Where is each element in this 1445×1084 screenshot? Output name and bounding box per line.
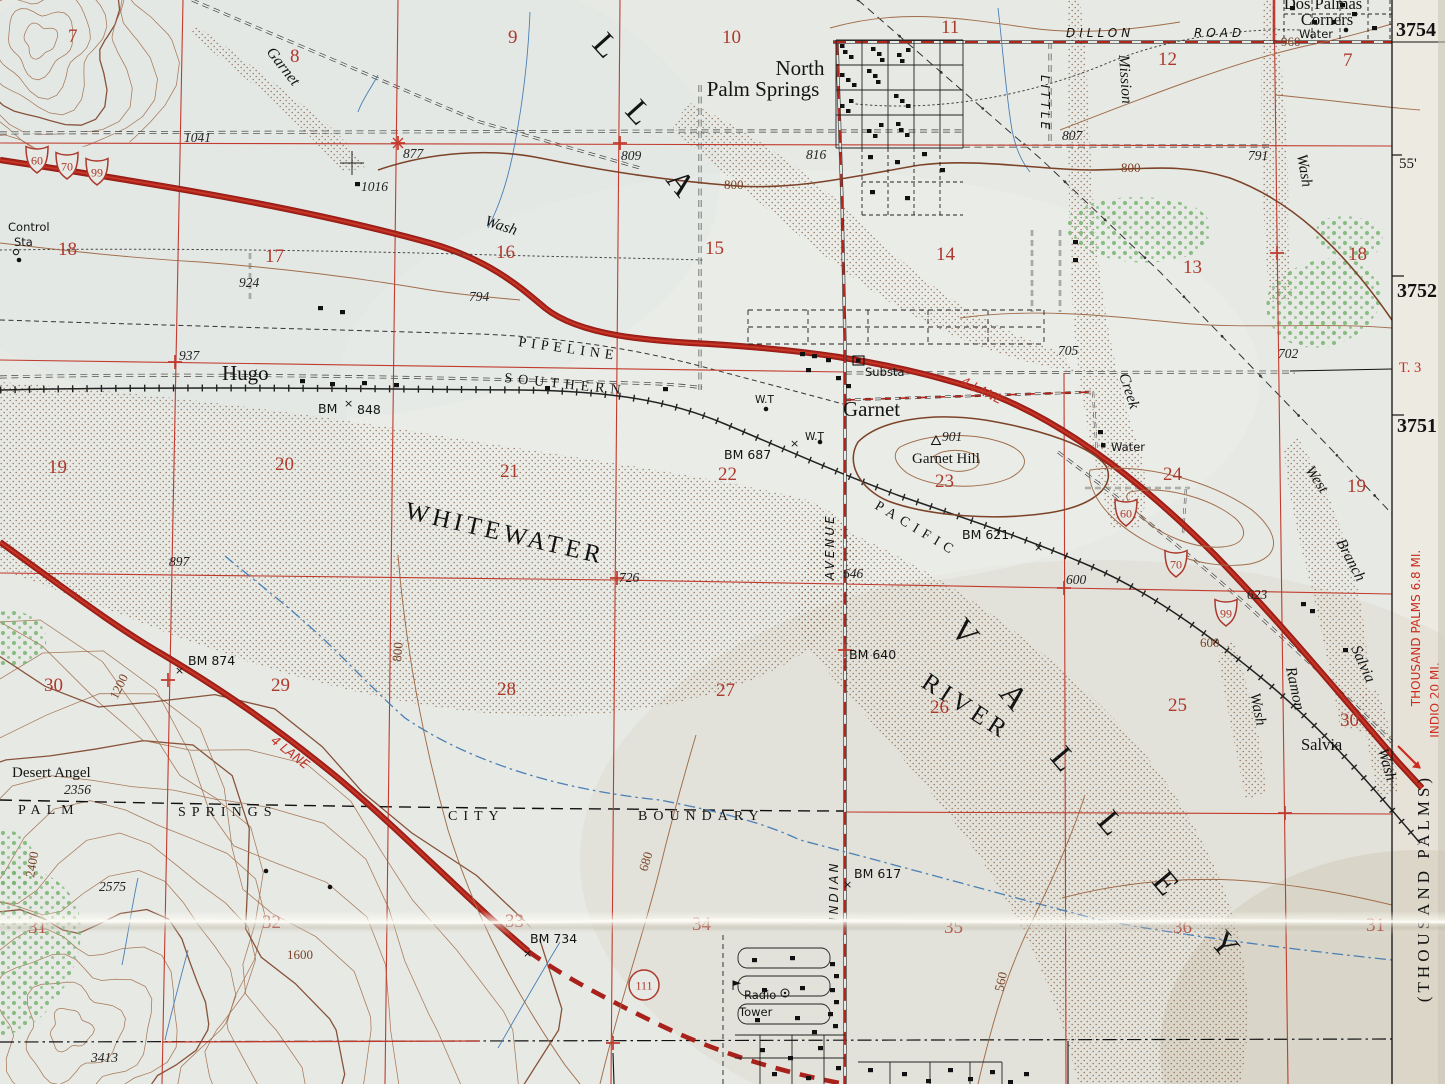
elev-label-1016: 1016 (361, 179, 388, 194)
building (840, 104, 845, 108)
building (812, 354, 817, 358)
town-label-garnet: Garnet (843, 397, 900, 421)
building (846, 384, 851, 388)
elev-label-726: 726 (619, 570, 640, 585)
sec-label-10: 10 (722, 27, 741, 48)
building (840, 73, 845, 77)
bm-label-bm-621: BM 621 (962, 527, 1009, 542)
building (877, 52, 882, 56)
sec-label-30: 30 (1340, 710, 1359, 731)
building (896, 122, 901, 126)
route-number: 70 (1170, 558, 1182, 572)
building (873, 134, 878, 138)
elev-label-897: 897 (169, 554, 191, 569)
building (940, 168, 945, 172)
building (849, 99, 854, 103)
rds-label-palm: PALM (18, 803, 80, 818)
building (880, 58, 885, 62)
building (906, 48, 911, 52)
route-number: 111 (635, 979, 652, 993)
bm-label-bm-640: BM 640 (849, 647, 896, 662)
sec-label-28: 28 (497, 679, 516, 700)
building (895, 160, 900, 164)
feat-label-mission: Mission (1115, 53, 1135, 104)
rds-label-boundary: BOUNDARY (638, 809, 765, 824)
building (300, 379, 305, 383)
clabel-label-800: 800 (389, 642, 406, 663)
sec-label-25: 25 (1168, 695, 1187, 716)
sec-label-16: 16 (496, 242, 515, 263)
building (990, 1070, 995, 1074)
building (1073, 258, 1078, 262)
building (867, 129, 872, 133)
bmx-label--: × (175, 664, 184, 677)
rdi-label-avenue: AVENUE (823, 513, 837, 581)
building (800, 352, 805, 356)
building (830, 988, 835, 992)
sec-label-11: 11 (941, 17, 959, 38)
building (1073, 240, 1078, 244)
building (867, 69, 872, 73)
building (806, 1076, 811, 1080)
sec-label-22: 22 (718, 464, 737, 485)
sans-label-substa: Substa (865, 365, 904, 379)
building (1024, 1072, 1029, 1076)
town2-label-salvia: Salvia (1301, 735, 1343, 754)
fold-crease-band (0, 911, 1445, 935)
building (752, 958, 757, 962)
sec-label-23: 23 (935, 471, 954, 492)
bm-label-848: 848 (357, 402, 381, 417)
building (897, 53, 902, 57)
building (836, 1066, 841, 1070)
building (818, 1046, 823, 1050)
building (846, 109, 851, 113)
sec-label-20: 20 (275, 454, 294, 475)
bm-label-bm-874: BM 874 (188, 653, 235, 668)
route-number: 70 (61, 160, 73, 174)
elev-label-794: 794 (469, 289, 490, 304)
well-square (1101, 443, 1106, 448)
building (318, 306, 323, 310)
rdi-label-little: LITTLE (1038, 75, 1052, 132)
sec-label-29: 29 (271, 675, 290, 696)
building (663, 387, 668, 391)
building (879, 123, 884, 127)
sec-label-14: 14 (936, 244, 956, 265)
building (1372, 26, 1377, 30)
building (826, 358, 831, 362)
building (355, 182, 360, 186)
sec-label-27: 27 (716, 680, 735, 701)
elev-label-816: 816 (806, 147, 827, 162)
building (899, 128, 904, 132)
point-symbol (328, 885, 333, 890)
sans-label-water: Water (1111, 440, 1145, 454)
substation-symbol-inner (856, 359, 861, 363)
building (968, 1077, 973, 1081)
elev-label-791: 791 (1248, 148, 1268, 163)
building (795, 1016, 800, 1020)
sec-label-7: 7 (1343, 50, 1353, 71)
sec-label-17: 17 (265, 246, 284, 267)
building (330, 382, 335, 386)
elev-label-2575: 2575 (99, 879, 126, 894)
bm-label-bm-617: BM 617 (854, 866, 901, 881)
route-number: 99 (1220, 607, 1232, 621)
point-symbol (17, 258, 22, 263)
sec-label-21: 21 (500, 461, 519, 482)
elev-label-600: 600 (1066, 572, 1087, 587)
elev-label-705: 705 (1058, 343, 1079, 358)
building (900, 59, 905, 63)
clabel-label-960: 960 (1281, 34, 1301, 49)
sec-label-7: 7 (68, 26, 78, 47)
sec-label-18: 18 (1348, 244, 1367, 265)
building (873, 74, 878, 78)
sec-label-15: 15 (705, 238, 724, 259)
mb-label-3754: 3754 (1396, 19, 1436, 41)
bmx-label--: × (843, 878, 852, 891)
building (926, 1079, 931, 1083)
topo-map: 6070996070991117891011127181716151413181… (0, 0, 1445, 1084)
elev-label-646: 646 (843, 566, 864, 581)
building (843, 50, 848, 54)
building (830, 962, 835, 966)
building (834, 974, 839, 978)
building (846, 78, 851, 82)
building (905, 196, 910, 200)
building (1310, 609, 1315, 613)
sans-label-control: Control (8, 220, 50, 234)
town-label-hugo: Hugo (222, 361, 269, 385)
bmx-label--: × (1034, 541, 1043, 554)
rds-label-city: CITY (448, 809, 505, 824)
building (876, 80, 881, 84)
sans-label-radio: Radio (744, 988, 776, 1002)
elev-label-937: 937 (179, 348, 201, 363)
bmx-label--: × (790, 437, 799, 450)
building (772, 1072, 777, 1076)
building (1098, 430, 1103, 434)
building (852, 83, 857, 87)
rdi-label-dillon: DILLON (1066, 26, 1134, 40)
radio-tower-dot (784, 992, 786, 994)
bmx-label--: × (344, 397, 353, 410)
mb-label-3751: 3751 (1397, 415, 1437, 437)
building (812, 1030, 817, 1034)
bmx-label--: × (523, 947, 532, 960)
building (788, 1056, 793, 1060)
route-number: 99 (91, 166, 103, 180)
point-symbol (764, 407, 769, 412)
bm-label-bm: BM (318, 401, 337, 416)
paper-crease (0, 911, 1445, 935)
elev-label-924: 924 (239, 275, 260, 290)
sec-label-9: 9 (508, 27, 518, 48)
building (906, 104, 911, 108)
building (868, 155, 873, 159)
building (806, 368, 811, 372)
building (362, 381, 367, 385)
clabel-label-1600: 1600 (287, 947, 313, 962)
building (836, 376, 841, 380)
elev-label-877: 877 (403, 146, 425, 161)
building (828, 1012, 833, 1016)
ms-label-55-: 55' (1399, 156, 1417, 172)
building (800, 986, 805, 990)
mb-label-3752: 3752 (1397, 280, 1437, 302)
sec-label-24: 24 (1163, 464, 1183, 485)
elev-label-623: 623 (1247, 587, 1268, 602)
building (790, 956, 795, 960)
elev-label-3413: 3413 (90, 1050, 118, 1065)
sec-label-30: 30 (44, 675, 63, 696)
sec-label-18: 18 (58, 239, 77, 260)
elev-label-2356: 2356 (64, 782, 91, 797)
rds-label-springs: SPRINGS (178, 805, 278, 820)
building (394, 383, 399, 387)
bm-label-bm-687: BM 687 (724, 447, 771, 462)
building (894, 94, 899, 98)
building (1008, 1080, 1013, 1084)
elev-label-809: 809 (621, 148, 642, 163)
building (948, 1068, 953, 1072)
sec-label-19: 19 (48, 457, 67, 478)
mred-label-thousand-palms-6-8-mi-: THOUSAND PALMS 6.8 MI. (1409, 550, 1423, 707)
tred-label-t-3: T. 3 (1399, 360, 1421, 376)
building (900, 99, 905, 103)
topo-map-photo: USGS topographic map — Garnet / North Pa… (0, 0, 1445, 1084)
route-number: 60 (1120, 507, 1132, 521)
town-label-palm-springs: Palm Springs (707, 77, 820, 101)
building (902, 1072, 907, 1076)
building (340, 310, 345, 314)
sec-label-13: 13 (1183, 257, 1202, 278)
sansS-label-w-t: W.T (805, 431, 825, 443)
building (905, 133, 910, 137)
building (870, 190, 875, 194)
mps-label--thousand-palms-: (THOUSAND PALMS) (1414, 774, 1433, 1002)
clabel-label-600: 600 (1200, 635, 1220, 650)
building (833, 1024, 838, 1028)
elev-label-807: 807 (1062, 128, 1084, 143)
sec-label-12: 12 (1158, 49, 1177, 70)
building (868, 1068, 873, 1072)
building (760, 1048, 765, 1052)
building (849, 55, 854, 59)
town3-label-garnet-hill: Garnet Hill (912, 451, 980, 467)
route-number: 60 (31, 154, 43, 168)
building (871, 47, 876, 51)
building (834, 1000, 839, 1004)
sans-label-water: Water (1299, 27, 1333, 41)
elev-label-702: 702 (1278, 346, 1299, 361)
elev-label-1041: 1041 (184, 130, 211, 145)
rdi-label-road: ROAD (1194, 26, 1245, 40)
town3-label-desert-angel: Desert Angel (12, 765, 91, 781)
sansS-label-w-t: W.T (755, 394, 775, 406)
clabel-label-800: 800 (1121, 160, 1141, 175)
point-symbol (264, 869, 269, 874)
elev-label-901: 901 (942, 429, 962, 444)
building (840, 44, 845, 48)
building (922, 152, 927, 156)
sans-label-sta: Sta (14, 235, 33, 249)
clabel-label-800: 800 (724, 177, 744, 192)
sans-label-tower: Tower (738, 1005, 773, 1019)
sec-label-19: 19 (1347, 476, 1366, 497)
building (1301, 602, 1306, 606)
